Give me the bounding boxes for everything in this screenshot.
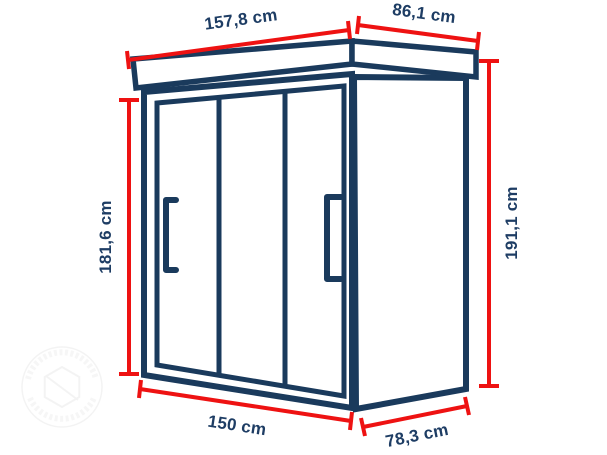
cabinet-door-opening xyxy=(157,86,344,396)
watermark-stamp-icon xyxy=(22,347,102,427)
dimension-label-right-height: 191,1 cm xyxy=(502,186,522,259)
cabinet-side-wall xyxy=(354,77,466,409)
dimension-line-right-height xyxy=(479,61,499,386)
dimension-diagram: 157,8 cm 86,1 cm 181,6 cm 191,1 cm 150 c… xyxy=(0,0,607,455)
cabinet-roof-side xyxy=(352,41,476,77)
dimension-label-left-height: 181,6 cm xyxy=(96,200,116,273)
cabinet xyxy=(133,41,476,409)
dimension-line-left-height xyxy=(119,100,139,374)
